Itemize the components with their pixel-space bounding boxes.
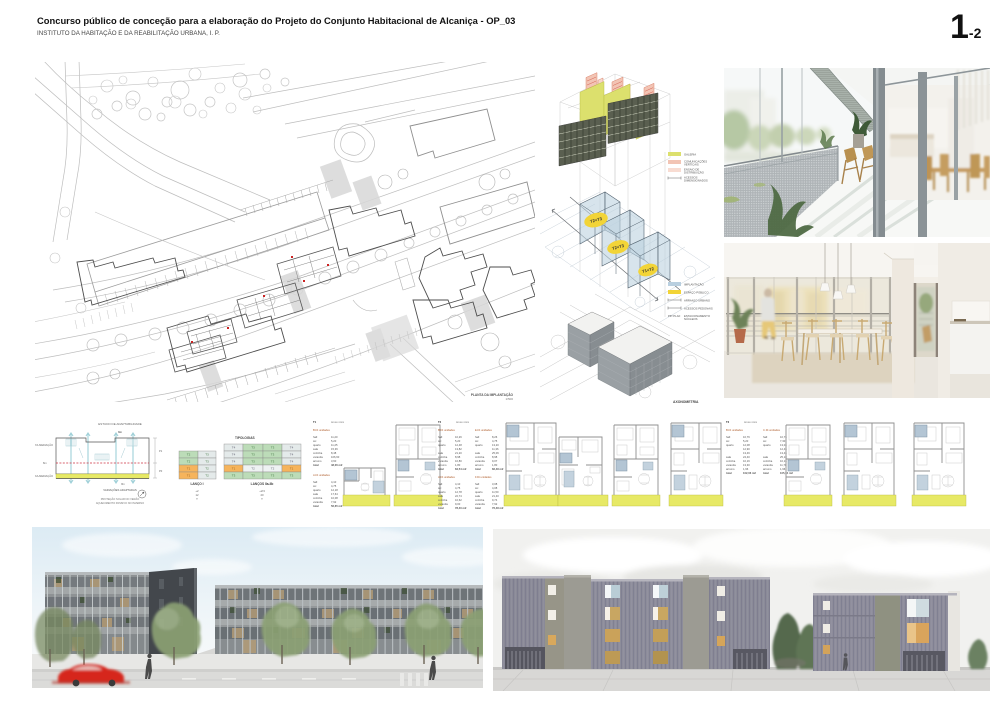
svg-text:8m: 8m xyxy=(121,482,125,486)
svg-text:E.Dt unidades: E.Dt unidades xyxy=(475,428,493,432)
svg-text:24,40: 24,40 xyxy=(743,455,750,459)
svg-text:T3: T3 xyxy=(205,453,209,457)
svg-text:48,06 m2: 48,06 m2 xyxy=(331,463,343,467)
svg-text:ESPAÇO PÚBLICO: ESPAÇO PÚBLICO xyxy=(684,289,709,294)
svg-text:T3: T3 xyxy=(271,446,275,450)
svg-text:hall: hall xyxy=(726,435,731,439)
svg-text:cozinha: cozinha xyxy=(763,459,773,463)
svg-text:cozinha: cozinha xyxy=(438,455,448,459)
svg-text:10,62: 10,62 xyxy=(455,498,462,502)
svg-text:T: T xyxy=(196,497,198,501)
svg-text:sala: sala xyxy=(726,455,731,459)
svg-text:10,26: 10,26 xyxy=(455,435,462,439)
svg-text:LANÇOS IIa-IIb: LANÇOS IIa-IIb xyxy=(251,482,274,486)
svg-text:sala: sala xyxy=(438,451,443,455)
svg-text:varanda: varanda xyxy=(726,463,736,467)
svg-text:11,20: 11,20 xyxy=(331,435,338,439)
svg-text:ACESSOS PEDONAIS: ACESSOS PEDONAIS xyxy=(684,306,713,310)
svg-text:T1: T1 xyxy=(187,467,191,471)
svg-text:T3: T3 xyxy=(271,474,275,478)
svg-text:IMPLANTAÇÃO: IMPLANTAÇÃO xyxy=(684,281,705,286)
svg-text:B.Dt unidades: B.Dt unidades xyxy=(726,428,744,432)
svg-text:7,30: 7,30 xyxy=(780,439,786,443)
svg-text:1,96: 1,96 xyxy=(780,467,786,471)
svg-text:21,40: 21,40 xyxy=(492,494,499,498)
svg-text:T2: T2 xyxy=(205,467,209,471)
svg-text:wc: wc xyxy=(438,440,442,443)
svg-text:T3: T3 xyxy=(251,474,255,478)
svg-text:quarto: quarto xyxy=(475,490,483,494)
svg-text:hall: hall xyxy=(438,482,443,486)
svg-text:1,80: 1,80 xyxy=(492,463,498,467)
svg-text:wc: wc xyxy=(475,440,479,443)
svg-text:DISTRIBUIÇÃO: DISTRIBUIÇÃO xyxy=(684,169,705,174)
svg-text:wc: wc xyxy=(475,487,479,490)
svg-text:total: total xyxy=(438,467,444,471)
svg-text:T4: T4 xyxy=(232,460,236,464)
svg-text:arrumo: arrumo xyxy=(438,463,447,467)
svg-text:hall: hall xyxy=(313,480,318,484)
svg-text:4,08: 4,08 xyxy=(492,486,498,490)
svg-text:sala: sala xyxy=(438,494,443,498)
svg-text:9,74: 9,74 xyxy=(492,498,498,502)
svg-text:12,18: 12,18 xyxy=(331,488,338,492)
svg-text:arrumo: arrumo xyxy=(313,459,322,463)
svg-text:T3: T3 xyxy=(251,460,255,464)
svg-text:22,74: 22,74 xyxy=(455,494,462,498)
svg-text:DIMENSIONADOS: DIMENSIONADOS xyxy=(684,178,708,182)
svg-text:hall: hall xyxy=(313,435,318,439)
svg-text:ARRANJO URBANO: ARRANJO URBANO xyxy=(684,298,711,302)
svg-text:9,00: 9,00 xyxy=(455,502,461,506)
svg-text:PROTEÇÃO SOLAR NO VERÃO: PROTEÇÃO SOLAR NO VERÃO xyxy=(101,496,139,501)
svg-text:11,36: 11,36 xyxy=(492,447,499,451)
svg-text:7,92: 7,92 xyxy=(331,500,337,504)
svg-text:total: total xyxy=(475,506,481,510)
svg-text:T3: T3 xyxy=(251,446,255,450)
svg-text:varanda: varanda xyxy=(313,500,323,504)
svg-text:wc: wc xyxy=(438,487,442,490)
svg-text:4,10: 4,10 xyxy=(331,480,337,484)
svg-text:8,98: 8,98 xyxy=(455,455,461,459)
svg-text:T4: T4 xyxy=(232,446,236,450)
svg-text:varanda: varanda xyxy=(438,459,448,463)
svg-text:PP/ PLAF: PP/ PLAF xyxy=(668,314,681,318)
svg-text:NÚCLEOS: NÚCLEOS xyxy=(684,316,698,321)
svg-text:quarto: quarto xyxy=(313,443,321,447)
svg-text:quarto: quarto xyxy=(438,443,446,447)
svg-text:varanda: varanda xyxy=(763,463,773,467)
svg-text:3,08: 3,08 xyxy=(492,482,498,486)
svg-text:sala: sala xyxy=(313,492,318,496)
svg-text:78,40 m2: 78,40 m2 xyxy=(455,506,467,510)
svg-text:cozinha: cozinha xyxy=(475,455,485,459)
svg-text:T2: T2 xyxy=(187,460,191,464)
svg-text:AXONOMETRIA: AXONOMETRIA xyxy=(673,400,699,404)
svg-text:10,76: 10,76 xyxy=(743,435,750,439)
svg-text:10,16: 10,16 xyxy=(743,459,750,463)
svg-text:8,26: 8,26 xyxy=(492,435,498,439)
svg-text:P1: P1 xyxy=(159,449,163,453)
svg-text:ESTUDO DE ADAPTABILIDADE: ESTUDO DE ADAPTABILIDADE xyxy=(98,422,142,426)
svg-text:8m: 8m xyxy=(118,430,122,434)
svg-text:LANÇO I: LANÇO I xyxy=(190,482,203,486)
svg-text:total: total xyxy=(313,504,319,508)
svg-text:15,36: 15,36 xyxy=(331,447,338,451)
svg-text:arrumo: arrumo xyxy=(726,467,735,471)
svg-text:total: total xyxy=(763,471,769,475)
svg-text:8m: 8m xyxy=(43,461,47,465)
svg-text:T4: T4 xyxy=(232,453,236,457)
svg-text:quarto: quarto xyxy=(475,443,483,447)
svg-text:sala: sala xyxy=(475,451,480,455)
svg-text:hall: hall xyxy=(475,435,480,439)
svg-text:T3: T3 xyxy=(290,474,294,478)
svg-text:cozinha: cozinha xyxy=(313,451,323,455)
svg-text:cozinha: cozinha xyxy=(438,498,448,502)
svg-text:T3: T3 xyxy=(205,460,209,464)
svg-text:B.Dt unidades: B.Dt unidades xyxy=(313,428,331,432)
svg-text:T3: T3 xyxy=(726,420,730,424)
svg-text:12,90: 12,90 xyxy=(743,447,750,451)
svg-text:1,96: 1,96 xyxy=(743,467,749,471)
svg-text:wc: wc xyxy=(313,485,317,488)
svg-text:25,06: 25,06 xyxy=(492,451,499,455)
svg-text:quarto: quarto xyxy=(763,443,771,447)
svg-text:T4: T4 xyxy=(290,460,294,464)
svg-text:VERTICAIS: VERTICAIS xyxy=(684,162,699,166)
svg-text:áreas úteis: áreas úteis xyxy=(331,420,345,424)
svg-text:AQUECIMENTO PASSIVO NO INVERNO: AQUECIMENTO PASSIVO NO INVERNO xyxy=(96,501,144,505)
svg-text:sala: sala xyxy=(763,455,768,459)
svg-text:varanda: varanda xyxy=(475,502,485,506)
svg-text:5,20: 5,20 xyxy=(743,439,749,443)
svg-text:10,80: 10,80 xyxy=(455,459,462,463)
svg-text:quarto: quarto xyxy=(438,490,446,494)
svg-text:T2: T2 xyxy=(187,453,191,457)
svg-text:12,48: 12,48 xyxy=(455,443,462,447)
svg-text:A.Dt unidades: A.Dt unidades xyxy=(438,475,456,479)
svg-text:total: total xyxy=(438,506,444,510)
svg-text:T4: T4 xyxy=(290,446,294,450)
svg-text:quarto: quarto xyxy=(726,443,734,447)
svg-text:cozinha: cozinha xyxy=(726,459,736,463)
svg-text:T2: T2 xyxy=(205,474,209,478)
svg-text:8,48: 8,48 xyxy=(331,451,337,455)
svg-text:ALTA-MEDIAÇÃO: ALTA-MEDIAÇÃO xyxy=(35,442,53,447)
svg-text:wc: wc xyxy=(313,440,317,443)
svg-text:T2: T2 xyxy=(251,467,255,471)
svg-text:102,06 m2: 102,06 m2 xyxy=(743,471,756,475)
svg-text:T3: T3 xyxy=(232,474,236,478)
svg-text:varanda: varanda xyxy=(438,502,448,506)
svg-text:áreas úteis: áreas úteis xyxy=(456,420,470,424)
svg-text:84,54 m2: 84,54 m2 xyxy=(455,467,467,471)
svg-text:T3: T3 xyxy=(251,453,255,457)
svg-text:BAIXA-MEDIAÇÃO: BAIXA-MEDIAÇÃO xyxy=(35,473,53,478)
svg-text:8,98: 8,98 xyxy=(492,455,498,459)
svg-text:82,48 m2: 82,48 m2 xyxy=(492,467,504,471)
svg-text:wc: wc xyxy=(726,440,730,443)
svg-text:T1: T1 xyxy=(187,474,191,478)
svg-text:T3: T3 xyxy=(271,453,275,457)
svg-text:cozinha: cozinha xyxy=(313,496,323,500)
svg-text:T1: T1 xyxy=(313,420,317,424)
svg-text:TIPOLOGIAS: TIPOLOGIAS xyxy=(235,436,255,440)
svg-text:9,07: 9,07 xyxy=(492,459,498,463)
svg-text:GALERIA: GALERIA xyxy=(684,152,696,156)
svg-text:T3: T3 xyxy=(271,460,275,464)
svg-text:hall: hall xyxy=(438,435,443,439)
svg-text:13,46: 13,46 xyxy=(743,451,750,455)
svg-text:T1: T1 xyxy=(232,467,236,471)
svg-text:1,80: 1,80 xyxy=(455,463,461,467)
svg-text:4,10: 4,10 xyxy=(455,482,461,486)
svg-text:21,20: 21,20 xyxy=(455,451,462,455)
svg-text:106,60: 106,60 xyxy=(331,455,340,459)
svg-text:sala: sala xyxy=(475,494,480,498)
svg-text:wc: wc xyxy=(763,440,767,443)
svg-text:P0: P0 xyxy=(159,469,163,473)
svg-text:total: total xyxy=(313,463,319,467)
svg-text:varanda: varanda xyxy=(475,459,485,463)
svg-text:T2: T2 xyxy=(438,420,442,424)
svg-text:76,48 m2: 76,48 m2 xyxy=(492,506,504,510)
svg-text:1/500: 1/500 xyxy=(505,397,513,401)
svg-text:13,30: 13,30 xyxy=(743,463,750,467)
svg-text:T2: T2 xyxy=(271,467,275,471)
svg-text:10,08: 10,08 xyxy=(331,496,338,500)
svg-text:F.Dt unidades: F.Dt unidades xyxy=(475,475,492,479)
svg-text:T4: T4 xyxy=(290,453,294,457)
svg-text:5,20: 5,20 xyxy=(331,439,337,443)
svg-text:B.Dt unidades: B.Dt unidades xyxy=(438,428,456,432)
svg-text:total: total xyxy=(475,467,481,471)
svg-text:12,08: 12,08 xyxy=(743,443,750,447)
svg-text:hall: hall xyxy=(763,435,768,439)
svg-text:arrumo: arrumo xyxy=(763,467,772,471)
svg-text:VARIAÇÕES ADAPTADAS: VARIAÇÕES ADAPTADAS xyxy=(103,487,137,492)
svg-text:varanda: varanda xyxy=(313,455,323,459)
svg-text:3,60: 3,60 xyxy=(331,459,337,463)
svg-text:5,20: 5,20 xyxy=(455,439,461,443)
svg-text:sala: sala xyxy=(313,447,318,451)
svg-text:A.Dt unidades: A.Dt unidades xyxy=(313,473,331,477)
svg-text:105,94 m2: 105,94 m2 xyxy=(780,471,793,475)
svg-text:T1: T1 xyxy=(290,467,294,471)
svg-text:C.Dt unidades: C.Dt unidades xyxy=(763,428,781,432)
svg-text:4,75: 4,75 xyxy=(492,439,498,443)
svg-text:13,20: 13,20 xyxy=(492,443,499,447)
svg-text:17,64: 17,64 xyxy=(331,492,338,496)
svg-text:total: total xyxy=(726,471,732,475)
svg-text:11,50: 11,50 xyxy=(492,490,499,494)
svg-text:13,82: 13,82 xyxy=(455,447,462,451)
svg-text:áreas úteis: áreas úteis xyxy=(744,420,758,424)
svg-text:11,25: 11,25 xyxy=(331,443,338,447)
svg-text:7,92: 7,92 xyxy=(492,502,498,506)
svg-text:cozinha: cozinha xyxy=(475,498,485,502)
svg-text:12,78: 12,78 xyxy=(455,490,462,494)
svg-text:arrumo: arrumo xyxy=(475,463,484,467)
svg-text:T: T xyxy=(261,497,263,501)
svg-text:quarto: quarto xyxy=(313,488,321,492)
svg-text:4,75: 4,75 xyxy=(455,486,461,490)
svg-text:56,65 m2: 56,65 m2 xyxy=(331,504,343,508)
svg-text:hall: hall xyxy=(475,482,480,486)
svg-text:4,75: 4,75 xyxy=(331,484,337,488)
